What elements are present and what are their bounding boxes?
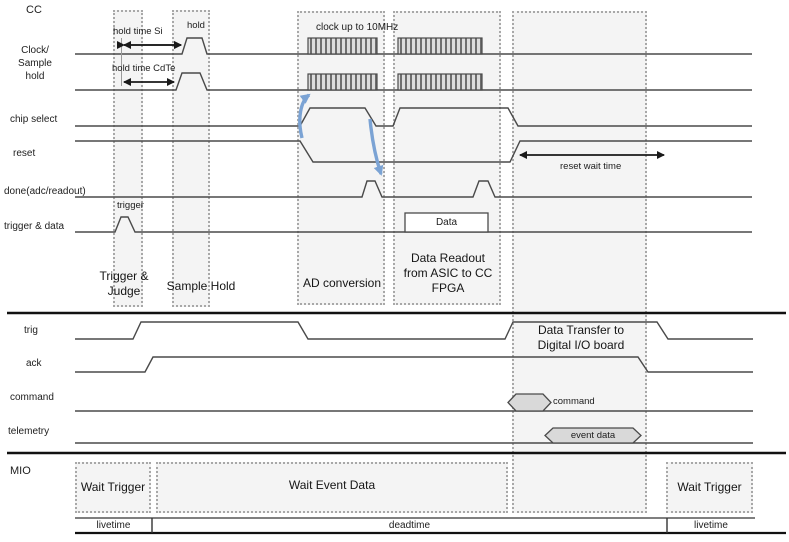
clock-burst-cdte-1 bbox=[308, 74, 377, 90]
blue-arrow-chipselect-to-clock bbox=[300, 95, 309, 138]
wait-event-data-label: Wait Event Data bbox=[156, 478, 508, 493]
signal-reset bbox=[75, 141, 752, 162]
cc-section-label: CC bbox=[26, 4, 42, 16]
clock-sample-hold-label: Clock/ Sample hold bbox=[8, 44, 62, 83]
clock-burst-cdte-2 bbox=[398, 74, 482, 90]
hold-time-si-label: hold time Si bbox=[113, 26, 163, 37]
signal-done bbox=[75, 181, 752, 197]
timing-diagram: CC MIO Clock/ Sample hold chip select re… bbox=[0, 0, 789, 542]
clock-burst-si-1 bbox=[308, 38, 377, 54]
mio-section-label: MIO bbox=[10, 465, 31, 477]
reset-label: reset bbox=[13, 148, 35, 159]
phase-label-data-readout: Data Readout from ASIC to CC FPGA bbox=[392, 251, 504, 296]
phase-label-ad-conversion: AD conversion bbox=[291, 276, 393, 291]
reset-wait-label: reset wait time bbox=[560, 161, 621, 172]
hold-label: hold bbox=[187, 20, 205, 31]
command-bus-lens bbox=[508, 394, 551, 411]
data-box-label: Data bbox=[405, 217, 488, 228]
ack-label: ack bbox=[26, 358, 42, 369]
livetime-right-label: livetime bbox=[667, 520, 755, 531]
command-bus-label: command bbox=[553, 396, 595, 407]
clock-burst-si-2 bbox=[398, 38, 482, 54]
chip-select-label: chip select bbox=[10, 114, 57, 125]
livetime-left-label: livetime bbox=[75, 520, 152, 531]
signal-chip-select bbox=[75, 108, 752, 126]
phase-label-sample-hold: Sample Hold bbox=[151, 279, 251, 294]
signal-ack bbox=[75, 357, 753, 372]
event-data-bus-label: event data bbox=[553, 430, 633, 441]
deadtime-label: deadtime bbox=[152, 520, 667, 531]
wait-trigger-left-label: Wait Trigger bbox=[75, 480, 151, 495]
wait-trigger-right-label: Wait Trigger bbox=[666, 480, 753, 495]
command-label: command bbox=[10, 392, 54, 403]
clock-rate-label: clock up to 10MHz bbox=[316, 22, 398, 33]
done-label: done(adc/readout) bbox=[4, 186, 86, 197]
trigger-pulse-label: trigger bbox=[117, 200, 144, 211]
blue-arrow-clock-to-done bbox=[370, 119, 381, 174]
trig-label: trig bbox=[24, 325, 38, 336]
trigger-data-label: trigger & data bbox=[4, 221, 64, 232]
phase-label-data-transfer: Data Transfer to Digital I/O board bbox=[519, 323, 643, 353]
telemetry-label: telemetry bbox=[8, 426, 49, 437]
signal-trig bbox=[75, 322, 753, 339]
hold-time-cdte-label: hold time CdTe bbox=[112, 63, 175, 74]
